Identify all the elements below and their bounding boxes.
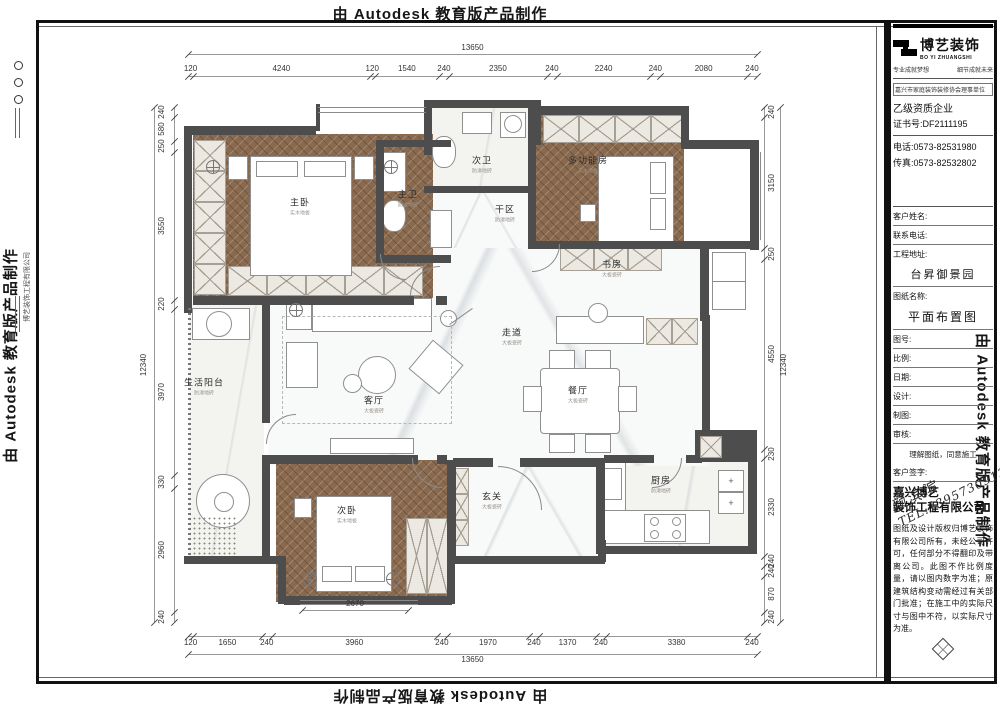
cabinet-x: [427, 518, 448, 594]
company-logo: 博艺装饰 BO YI ZHUANGSHI: [893, 31, 993, 65]
dimension-label: 240: [536, 65, 568, 73]
room-name: 书房: [602, 258, 622, 271]
wall-segment: [262, 303, 270, 423]
wall-segment: [528, 186, 536, 248]
phone-number: 电话:0573-82531980: [893, 140, 993, 153]
room-finish-note: 实木地板: [290, 210, 310, 217]
wall-segment: [453, 458, 493, 467]
dimension-label: 240: [251, 639, 283, 647]
cabinet-x: [700, 436, 722, 458]
room-name: 客厅: [364, 394, 384, 407]
dimension-label: 220: [158, 288, 166, 320]
dimension-label: 2670: [339, 600, 371, 608]
ceiling-target-icon: [289, 303, 303, 317]
dimension-label: 2350: [482, 65, 514, 73]
detail-line: [318, 107, 426, 108]
room-name: 次卧: [337, 504, 357, 517]
field-customer-name: 客户姓名:: [893, 207, 993, 226]
cabinet-x: [194, 264, 226, 295]
furniture: [462, 112, 492, 134]
room-name: 走道: [502, 326, 522, 339]
appliance-cell: +: [718, 492, 744, 514]
title-block-spacer: [893, 172, 993, 207]
wall-segment: [184, 126, 316, 135]
room-label-dry-area: 干区防滑地砖: [495, 203, 515, 224]
fax-number: 传真:0573-82532802: [893, 156, 993, 169]
dimension-label: 1970: [472, 639, 504, 647]
cabinet-x: [646, 318, 672, 345]
dimension-line: [764, 107, 765, 622]
dimension-label: 1540: [391, 65, 423, 73]
company-brand-en: BO YI ZHUANGSHI: [920, 55, 980, 61]
ceiling-target-icon: [386, 572, 400, 586]
room-name: 主卫: [398, 188, 418, 201]
furniture-round: [588, 303, 608, 323]
wall-segment: [447, 460, 456, 560]
furniture: [430, 210, 452, 248]
wall-segment: [596, 458, 605, 554]
cabinet-x: [406, 518, 427, 594]
margin-mark-circle: [14, 61, 23, 70]
room-label-entry: 玄关大板瓷砖: [482, 490, 502, 511]
wall-segment: [520, 458, 604, 467]
field-drawing-number: 图号:: [893, 330, 993, 349]
association-line: 嘉兴市家庭装饰装修协会理事单位: [893, 83, 993, 96]
furniture: [585, 434, 611, 453]
margin-mark-circle: [14, 78, 23, 87]
detail-line: [712, 281, 746, 282]
wall-segment: [533, 106, 689, 115]
wall-segment: [424, 186, 533, 193]
detail-line: [318, 112, 426, 113]
furniture: [585, 350, 611, 369]
room-finish-note: 大板瓷砖: [482, 504, 502, 511]
furniture-round: [206, 311, 232, 337]
room-finish-note: 大板瓷砖: [364, 408, 384, 415]
wall-segment: [424, 100, 432, 155]
dimension-label: 12340: [780, 345, 788, 385]
ceiling-target-icon: [384, 160, 398, 174]
room-finish-note: 防滑地砖: [472, 168, 492, 175]
ceiling-target-icon: [206, 160, 220, 174]
dimension-label: 240: [158, 601, 166, 633]
field-scale: 比例:: [893, 349, 993, 368]
dimension-label: 4550: [768, 338, 776, 370]
wall-segment: [604, 455, 654, 463]
company-brand-cn: 博艺装饰: [920, 35, 980, 55]
wall-segment: [750, 140, 759, 250]
dimension-label: 3150: [768, 167, 776, 199]
furniture-round: [214, 492, 234, 512]
frame-line: [36, 20, 39, 684]
dimension-label: 240: [428, 65, 460, 73]
wall-segment: [268, 455, 418, 464]
furniture: [618, 386, 637, 412]
dimension-line: [188, 54, 757, 55]
room-name: 次卫: [472, 154, 492, 167]
dimension-label: 2240: [588, 65, 620, 73]
furniture-round: [650, 517, 659, 526]
frame-line-thin: [36, 677, 997, 678]
furniture: [354, 156, 374, 180]
insulation-zigzag: [188, 308, 191, 558]
dimension-label: 240: [768, 96, 776, 128]
dimension-label: 330: [158, 466, 166, 498]
dimension-label: 240: [736, 639, 768, 647]
wall-segment: [528, 100, 536, 193]
field-reviewer: 审核:: [893, 425, 993, 444]
title-block: 博艺装饰 BO YI ZHUANGSHI 专业成就梦想 细节成就未来 嘉兴市家庭…: [893, 24, 993, 678]
dimension-label: 2960: [158, 534, 166, 566]
room-finish-note: 大板瓷砖: [602, 272, 622, 279]
wall-segment: [262, 455, 270, 559]
autodesk-watermark-left: 由 Autodesk 教育版产品制作: [0, 196, 21, 516]
dimension-label: 3970: [158, 376, 166, 408]
dimension-label: 13650: [453, 656, 493, 664]
field-drawing-name: 图纸名称:: [893, 287, 993, 305]
furniture: [330, 438, 414, 454]
cabinet-x: [194, 202, 226, 233]
wall-segment: [436, 296, 447, 305]
room-finish-note: 防滑地砖: [495, 217, 515, 224]
ceiling-target-icon: [303, 572, 317, 586]
wall-segment: [700, 241, 709, 321]
field-draftsman: 制图:: [893, 406, 993, 425]
furniture: [256, 161, 298, 177]
dimension-label: 250: [768, 238, 776, 270]
slogan-left: 专业成就梦想: [893, 65, 929, 74]
certificate-number: 证书号:DF2111195: [893, 117, 993, 136]
autodesk-watermark-bottom: 由 Autodesk 教育版产品制作: [0, 686, 880, 707]
wall-segment: [702, 315, 710, 435]
wall-segment: [376, 140, 451, 147]
room-label-corridor: 走道大板瓷砖: [502, 326, 522, 347]
room-label-study: 书房大板瓷砖: [602, 258, 622, 279]
qualification: 乙级资质企业: [893, 100, 993, 115]
room-name: 生活阳台: [184, 376, 224, 389]
frame-line: [884, 23, 891, 681]
room-name: 厨房: [651, 474, 671, 487]
furniture: [602, 468, 622, 500]
wall-segment: [681, 140, 759, 149]
frame-line-thin: [15, 296, 16, 332]
furniture: [294, 498, 312, 518]
cabinet-x: [615, 115, 651, 143]
cabinet-x: [672, 318, 698, 345]
room-finish-note: 防滑地砖: [398, 202, 418, 209]
dimension-label: 240: [639, 65, 671, 73]
room-label-second-bath: 次卫防滑地砖: [472, 154, 492, 175]
field-date: 日期:: [893, 368, 993, 387]
dimension-line: [302, 610, 408, 611]
dimension-tick: [754, 651, 761, 658]
dimension-label: 120: [175, 65, 207, 73]
company-vertical-text: 博艺装饰工程有限公司: [22, 207, 32, 367]
room-label-multi-room: 多功能房实木地板: [568, 154, 608, 175]
dimension-label: 240: [518, 639, 550, 647]
dimension-label: 2080: [688, 65, 720, 73]
wall-segment: [598, 546, 757, 554]
dimension-label: 250: [158, 130, 166, 162]
boyi-logo-icon: [893, 37, 917, 59]
room-name: 主卧: [290, 196, 310, 209]
cabinet-x: [579, 115, 615, 143]
frame-line-thin: [19, 108, 20, 138]
field-contact-phone: 联系电话:: [893, 226, 993, 245]
frame-line: [994, 20, 997, 684]
slogan-right: 细节成就未来: [957, 65, 993, 74]
cabinet-x: [194, 233, 226, 264]
room-label-dining-room: 餐厅大板瓷砖: [568, 384, 588, 405]
room-label-master-bath: 主卫防滑地砖: [398, 188, 418, 209]
detail-line: [760, 152, 761, 240]
dimension-label: 240: [768, 601, 776, 633]
room-finish-note: 实木地板: [568, 168, 608, 175]
wall-segment: [193, 296, 414, 305]
stamp-diamond-icon: [932, 637, 955, 660]
dimension-label: 2330: [768, 491, 776, 523]
copyright-disclaimer: 图纸及设计版权归博艺装饰有限公司所有，未经公司许可，任何部分不得翻印及带离公司。…: [893, 520, 993, 636]
frame-line-thin: [19, 296, 20, 332]
room-finish-note: 防滑地砖: [651, 488, 671, 495]
room-label-balcony: 生活阳台防滑地砖: [184, 376, 224, 397]
dimension-tick: [171, 619, 178, 626]
wall-segment: [376, 146, 384, 262]
dimension-line: [154, 107, 155, 622]
dimension-line: [188, 76, 757, 77]
wall-segment: [316, 104, 320, 131]
room-label-second-bedroom: 次卧实木地板: [337, 504, 357, 525]
room-label-master-bedroom: 主卧实木地板: [290, 196, 310, 217]
furniture-round: [650, 530, 659, 539]
dimension-label: 13650: [453, 44, 493, 52]
frame-line-thin: [36, 26, 997, 27]
margin-mark-circle: [14, 95, 23, 104]
dimension-tick: [754, 73, 761, 80]
room-finish-note: 防滑地砖: [184, 390, 224, 397]
room-name: 多功能房: [568, 154, 608, 167]
furniture: [549, 350, 575, 369]
room-finish-note: 实木地板: [337, 518, 357, 525]
furniture: [523, 386, 542, 412]
furniture: [304, 161, 346, 177]
dimension-line: [174, 107, 175, 622]
drawing-name-value: 平面布置图: [893, 305, 993, 330]
dimension-label: 4240: [265, 65, 297, 73]
dimension-label: 12340: [140, 345, 148, 385]
dimension-label: 3960: [338, 639, 370, 647]
title-block-top-bar: [893, 24, 993, 28]
project-address-value: 台昇御景园: [893, 263, 993, 287]
wall-segment: [184, 126, 192, 313]
dimension-tick: [405, 607, 412, 614]
dimension-label: 1650: [211, 639, 243, 647]
room-finish-note: 大板瓷砖: [568, 398, 588, 405]
furniture-round: [672, 530, 681, 539]
dimension-tick: [777, 619, 784, 626]
field-designer: 设计:: [893, 387, 993, 406]
room-name: 玄关: [482, 490, 502, 503]
dimension-tick: [754, 51, 761, 58]
furniture: [322, 566, 352, 582]
dimension-label: 1370: [552, 639, 584, 647]
drawing-sheet: 由 Autodesk 教育版产品制作 由 Autodesk 教育版产品制作 由 …: [0, 0, 1000, 707]
wall-segment: [424, 100, 536, 108]
cabinet-x: [194, 171, 226, 202]
furniture-round: [672, 517, 681, 526]
wall-segment: [748, 456, 757, 554]
furniture: [580, 204, 596, 222]
furniture: [549, 434, 575, 453]
dimension-label: 240: [585, 639, 617, 647]
furniture: [355, 566, 385, 582]
frame-line: [36, 681, 997, 684]
frame-line-thin: [876, 26, 877, 678]
appliance-cell: +: [718, 470, 744, 492]
dimension-label: 230: [768, 438, 776, 470]
room-label-kitchen: 厨房防滑地砖: [651, 474, 671, 495]
room-name: 餐厅: [568, 384, 588, 397]
dimension-label: 3550: [158, 210, 166, 242]
cabinet-x: [543, 115, 579, 143]
dimension-label: 240: [426, 639, 458, 647]
room-label-living-room: 客厅大板瓷砖: [364, 394, 384, 415]
furniture: [228, 156, 248, 180]
furniture-round: [504, 115, 522, 133]
field-project-address: 工程地址:: [893, 245, 993, 263]
dimension-label: 3380: [661, 639, 693, 647]
frame-line: [36, 20, 997, 23]
furniture: [650, 198, 666, 230]
association-stamp: [893, 636, 993, 657]
furniture: [650, 162, 666, 194]
frame-line-thin: [15, 108, 16, 138]
room-finish-note: 大板瓷砖: [502, 340, 522, 347]
room-name: 干区: [495, 203, 515, 216]
dimension-label: 120: [356, 65, 388, 73]
wall-segment: [453, 556, 605, 564]
plant-area: [192, 516, 236, 556]
wall-segment: [184, 556, 286, 564]
dimension-label: 240: [736, 65, 768, 73]
